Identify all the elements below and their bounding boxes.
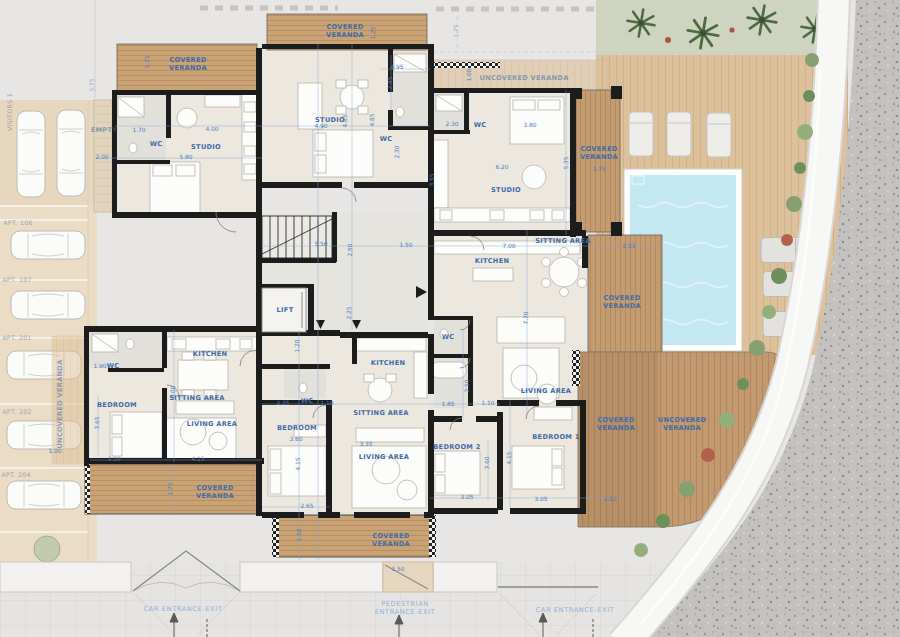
dim-label: 3.60 xyxy=(289,436,302,443)
room-label: SITTING AREA xyxy=(169,394,224,402)
dim-label: 1.75 xyxy=(592,166,605,173)
dim-label: 4.15 xyxy=(295,457,302,470)
room-label: WC xyxy=(150,140,163,148)
dim-label: 1.70 xyxy=(132,127,145,134)
dim-label: 3.05 xyxy=(534,496,547,503)
room-label: BEDROOM 2 xyxy=(433,443,480,451)
dim-label: 4.85 xyxy=(369,113,376,126)
dim-label: 2.50 xyxy=(464,379,471,392)
room-label: COVERED VERANDA xyxy=(366,532,416,548)
dim-label: 7.70 xyxy=(523,311,530,324)
dim-label: 3.60 xyxy=(484,456,491,469)
entrance-label: PEDESTRIAN ENTRANCE-EXIT xyxy=(359,600,451,616)
dim-label: 4.15 xyxy=(506,451,513,464)
dim-label: 2.90 xyxy=(347,243,354,256)
room-label: EMPTY xyxy=(91,126,118,134)
room-label: WC xyxy=(107,362,120,370)
plan-labels: COVERED VERANDACOVERED VERANDAUNCOVERED … xyxy=(0,0,900,637)
dim-label: 1.00 xyxy=(466,68,473,81)
room-label: KITCHEN xyxy=(371,359,406,367)
room-label: WC xyxy=(442,333,455,341)
room-label: SITTING AREA xyxy=(353,409,408,417)
dim-label: 2.65 xyxy=(300,503,313,510)
room-label: UNCOVERED VERANDA xyxy=(479,74,568,82)
room-label: COVERED VERANDA xyxy=(597,294,647,310)
room-label: UNCOVERED VERANDA xyxy=(56,359,64,448)
room-label: COVERED VERANDA xyxy=(190,484,240,500)
dim-label: 2.25 xyxy=(346,306,353,319)
site-label: APT. 202 xyxy=(2,408,32,416)
room-label: BEDROOM 1 xyxy=(532,433,579,441)
dim-label: 1.50 xyxy=(399,242,412,249)
dim-label: 1.25 xyxy=(370,26,377,39)
room-label: LIVING AREA xyxy=(521,387,572,395)
room-label: STUDIO xyxy=(191,143,221,151)
site-label: APT. 204 xyxy=(1,471,31,479)
dim-label: 5.75 xyxy=(89,78,96,91)
dim-label: 5.35 xyxy=(563,156,570,169)
room-label: UNCOVERED VERANDA xyxy=(651,416,713,432)
dim-label: 2.00 xyxy=(95,154,108,161)
floor-plan-canvas: COVERED VERANDACOVERED VERANDAUNCOVERED … xyxy=(0,0,900,637)
dim-label: 7.00 xyxy=(502,243,515,250)
site-label: APT. 106 xyxy=(3,219,33,227)
room-label: WC xyxy=(474,121,487,129)
room-label: LIVING AREA xyxy=(187,420,238,428)
room-label: LIFT xyxy=(277,306,294,314)
dim-label: 4.85 xyxy=(342,114,349,127)
dim-label: 1.50 xyxy=(391,566,404,573)
room-label: STUDIO xyxy=(491,186,521,194)
dim-label: 1.20 xyxy=(294,339,301,352)
dim-label: 5.80 xyxy=(179,154,192,161)
dim-label: 2.30 xyxy=(445,121,458,128)
dim-label: 2.50 xyxy=(603,496,616,503)
room-label: BEDROOM xyxy=(97,401,137,409)
room-label: BEDROOM xyxy=(277,424,317,432)
dim-label: 3.35 xyxy=(359,441,372,448)
dim-label: 2.35 xyxy=(276,400,289,407)
entrance-label: CAR ENTRANCE-EXIT xyxy=(144,605,223,613)
room-label: KITCHEN xyxy=(193,350,228,358)
dim-label: 1.85 xyxy=(441,401,454,408)
dim-label: 3.65 xyxy=(94,416,101,429)
dim-label: 4.90 xyxy=(314,123,327,130)
dim-label: 5.50 xyxy=(314,241,327,248)
dim-label: 4.95 xyxy=(390,64,403,71)
dim-label: 1.75 xyxy=(144,55,151,68)
room-label: KITCHEN xyxy=(475,257,510,265)
dim-label: 3.10 xyxy=(107,456,120,463)
room-label: COVERED VERANDA xyxy=(163,56,213,72)
site-label: APT. 107 xyxy=(2,276,32,284)
dim-label: 3.05 xyxy=(460,494,473,501)
dim-label: 2.45 xyxy=(387,76,394,89)
dim-label: 6.00 xyxy=(170,385,177,398)
site-label: VISITORS 1 xyxy=(6,93,14,131)
dim-label: 1.10 xyxy=(481,400,494,407)
room-label: COVERED VERANDA xyxy=(320,23,370,39)
dim-label: 1.75 xyxy=(453,24,460,37)
room-label: COVERED VERANDA xyxy=(591,416,641,432)
room-label: STUDIO xyxy=(315,116,345,124)
dim-label: 6.20 xyxy=(495,164,508,171)
room-label: SITTING AREA xyxy=(535,237,590,245)
site-label: APT. 201 xyxy=(2,334,32,342)
dim-label: 3.55 xyxy=(429,173,436,186)
dim-label: 2.55 xyxy=(622,243,635,250)
dim-label: 3.80 xyxy=(523,122,536,129)
room-label: WC xyxy=(301,397,314,405)
dim-label: 1.00 xyxy=(48,448,61,455)
dim-label: 1.75 xyxy=(167,482,174,495)
dim-label: 2.30 xyxy=(394,145,401,158)
dim-label: 1.50 xyxy=(296,528,303,541)
dim-label: 1.10 xyxy=(320,400,333,407)
room-label: COVERED VERANDA xyxy=(574,145,624,161)
dim-label: 4.00 xyxy=(205,126,218,133)
dim-label: 1.90 xyxy=(93,363,106,370)
entrance-label: CAR ENTRANCE-EXIT xyxy=(536,606,615,614)
room-label: LIVING AREA xyxy=(359,453,410,461)
room-label: WC xyxy=(380,135,393,143)
dim-label: 4.15 xyxy=(191,456,204,463)
